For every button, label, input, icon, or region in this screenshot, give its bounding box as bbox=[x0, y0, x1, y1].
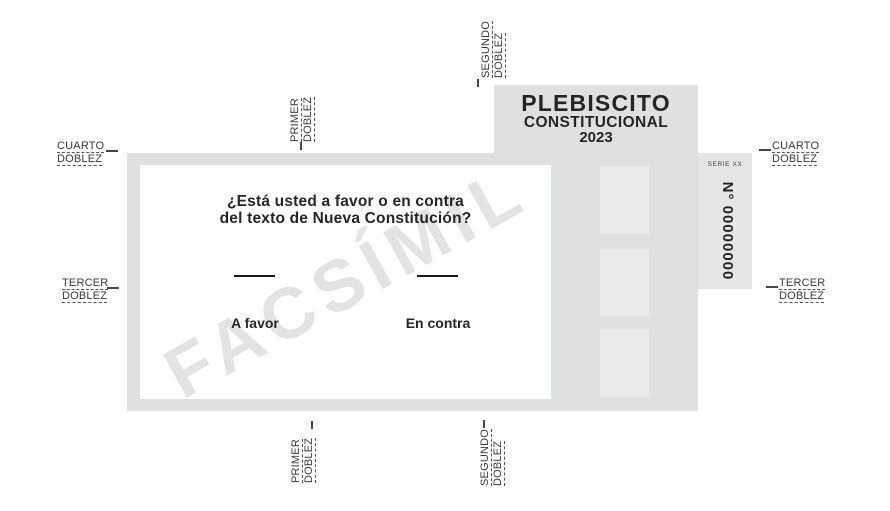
fold-word: PRIMER bbox=[290, 439, 303, 483]
stub-square bbox=[600, 249, 649, 316]
fold-label-tercer-doblez-left: TERCER DOBLEZ bbox=[62, 277, 108, 303]
fold-label-primer-doblez-top: PRIMER DOBLEZ bbox=[289, 88, 315, 142]
fold-tick bbox=[311, 421, 313, 429]
ballot-question: ¿Está usted a favor o en contra del text… bbox=[140, 193, 551, 227]
ballot-title-block: PLEBISCITO CONSTITUCIONAL 2023 bbox=[494, 92, 698, 146]
fold-word: SEGUNDO bbox=[479, 429, 492, 486]
stub-square bbox=[600, 329, 649, 397]
series-label: SERIE XX bbox=[698, 161, 752, 168]
fold-word: DOBLEZ bbox=[779, 290, 824, 303]
ballot-subtitle: CONSTITUCIONAL bbox=[494, 115, 698, 130]
fold-tick bbox=[766, 286, 778, 288]
mark-area-en-contra[interactable] bbox=[417, 275, 458, 277]
fold-word: SEGUNDO bbox=[480, 21, 493, 78]
fold-tick bbox=[300, 142, 302, 150]
fold-label-cuarto-doblez-right: CUARTO DOBLEZ bbox=[772, 140, 819, 166]
fold-word: TERCER bbox=[62, 277, 108, 290]
fold-tick bbox=[759, 149, 771, 151]
fold-tick bbox=[107, 287, 119, 289]
fold-word: CUARTO bbox=[772, 140, 819, 153]
fold-word: DOBLEZ bbox=[492, 441, 505, 486]
fold-word: DOBLEZ bbox=[57, 153, 102, 166]
fold-word: DOBLEZ bbox=[303, 438, 316, 483]
fold-tick bbox=[106, 150, 118, 152]
fold-tick bbox=[477, 79, 479, 87]
fold-word: DOBLEZ bbox=[493, 33, 506, 78]
voting-area: FACSÍMIL ¿Está usted a favor o en contra… bbox=[140, 165, 551, 399]
fold-tick bbox=[483, 420, 485, 428]
fold-word: PRIMER bbox=[289, 98, 302, 142]
fold-label-primer-doblez-bottom: PRIMER DOBLEZ bbox=[290, 429, 316, 483]
fold-label-segundo-doblez-top: SEGUNDO DOBLEZ bbox=[480, 18, 506, 78]
fold-word: TERCER bbox=[779, 277, 825, 290]
ballot-year: 2023 bbox=[494, 130, 698, 146]
fold-word: DOBLEZ bbox=[62, 290, 107, 303]
fold-label-tercer-doblez-right: TERCER DOBLEZ bbox=[779, 277, 825, 303]
fold-word: DOBLEZ bbox=[772, 153, 817, 166]
fold-label-cuarto-doblez-left: CUARTO DOBLEZ bbox=[57, 140, 104, 166]
stub-square bbox=[600, 166, 649, 234]
fold-word: DOBLEZ bbox=[302, 97, 315, 142]
ballot-facsimile-page: PLEBISCITO CONSTITUCIONAL 2023 SERIE XX … bbox=[0, 0, 890, 511]
mark-area-a-favor[interactable] bbox=[234, 275, 275, 277]
option-label-en-contra: En contra bbox=[406, 315, 471, 331]
fold-word: CUARTO bbox=[57, 140, 104, 153]
serial-number: N° 00000000 bbox=[718, 173, 736, 289]
question-line-1: ¿Está usted a favor o en contra bbox=[140, 193, 551, 210]
fold-label-segundo-doblez-bottom: SEGUNDO DOBLEZ bbox=[479, 426, 505, 486]
option-label-a-favor: A favor bbox=[231, 315, 279, 331]
question-line-2: del texto de Nueva Constitución? bbox=[140, 210, 551, 227]
ballot-title: PLEBISCITO bbox=[494, 92, 698, 115]
